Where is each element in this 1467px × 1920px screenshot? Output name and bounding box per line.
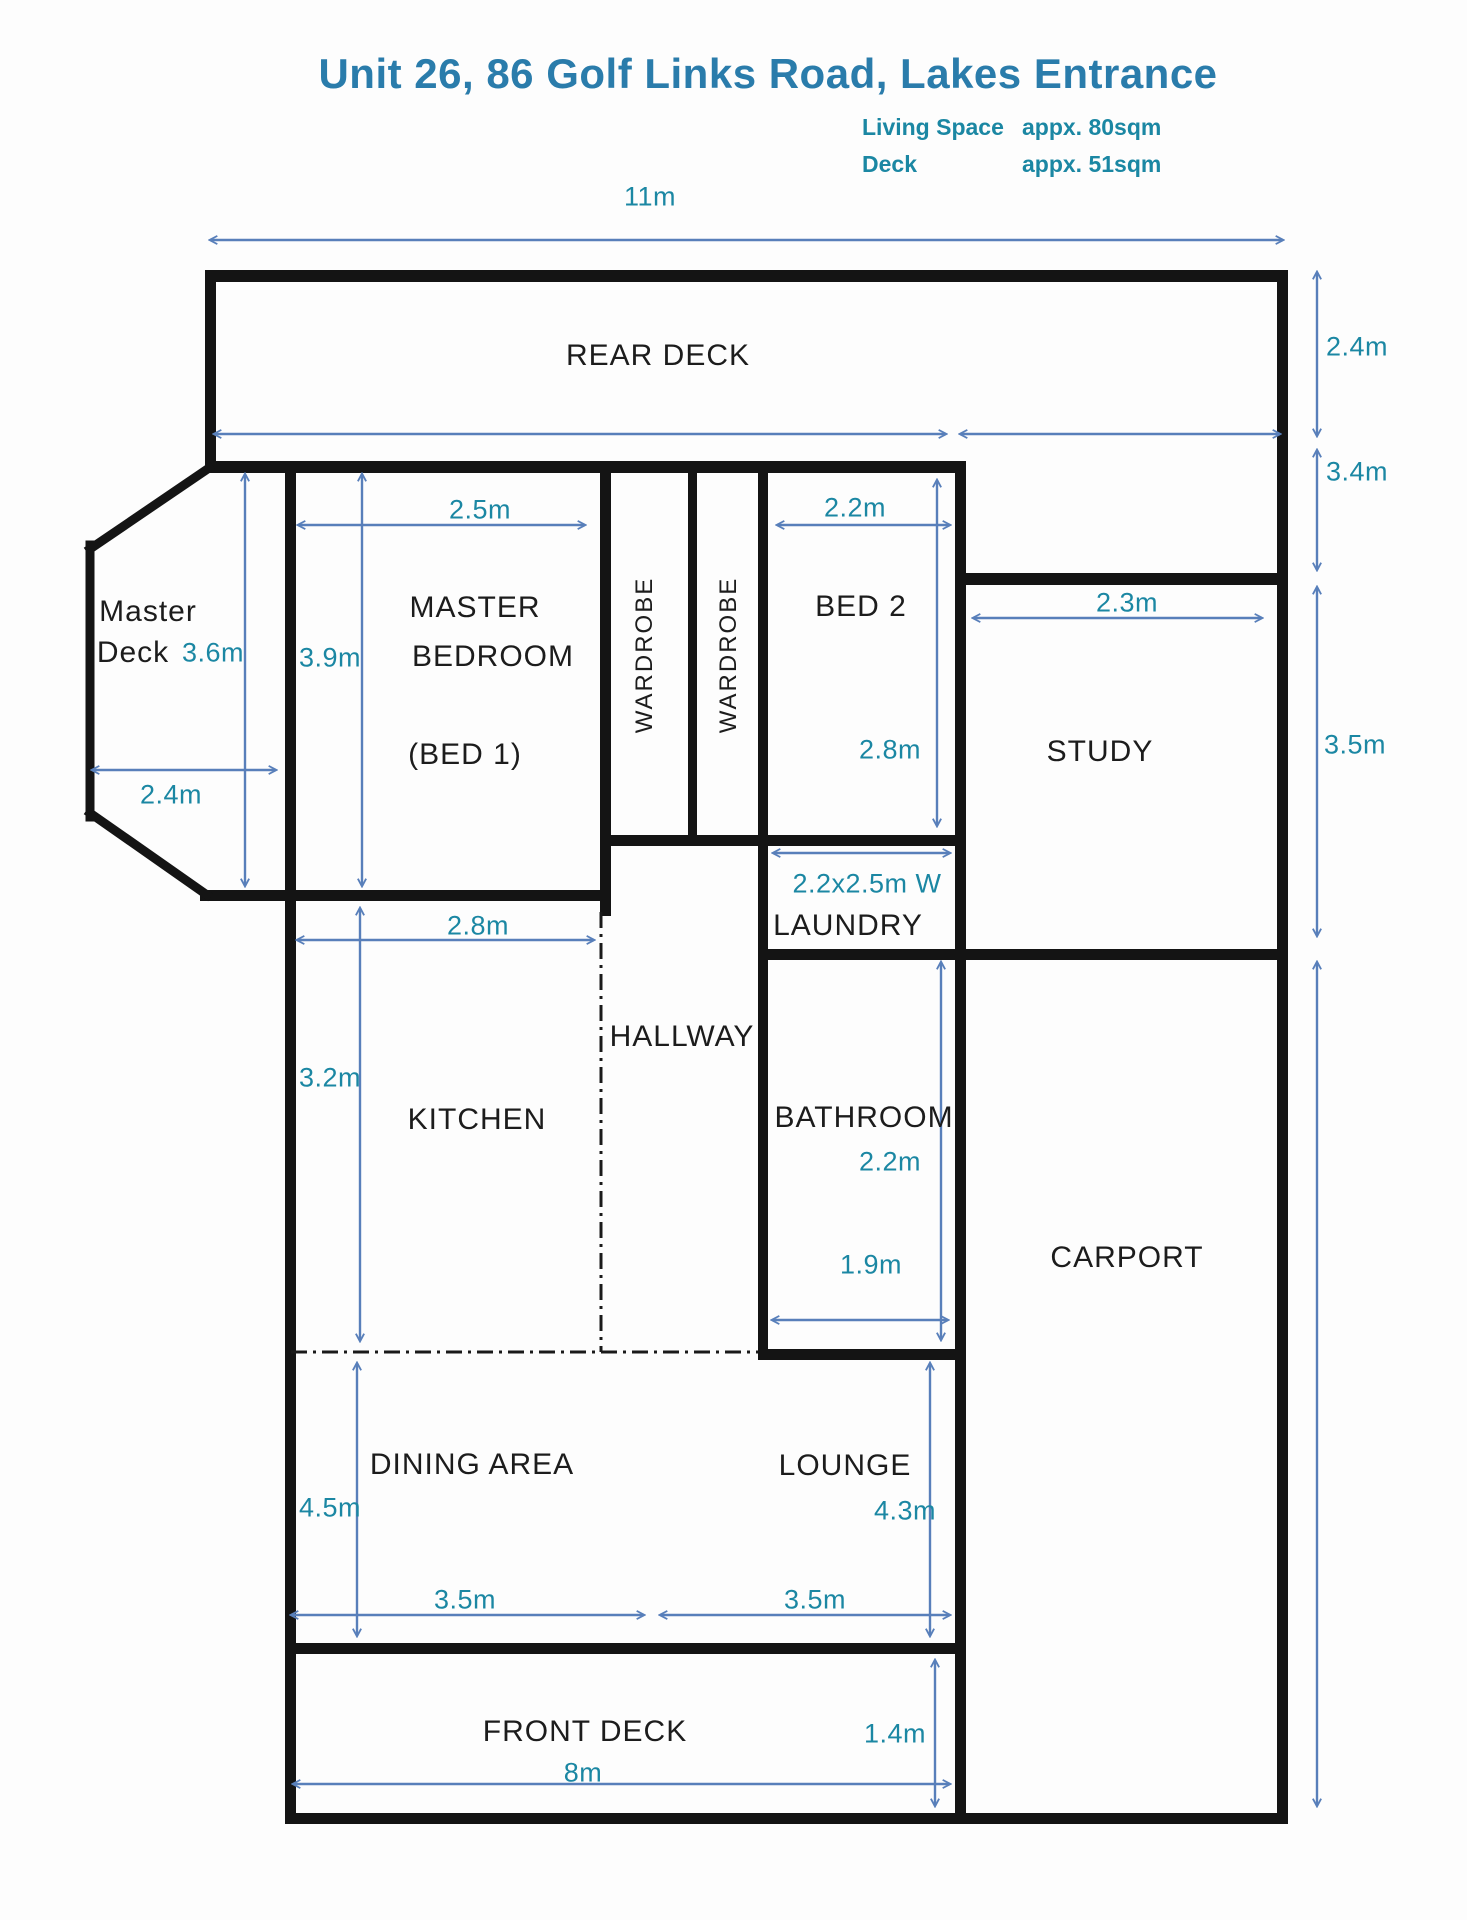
room-label-rear-deck: REAR DECK: [566, 341, 750, 371]
master-deck-outline: [90, 468, 209, 895]
dim-master-bedroom-height: 3.9m: [299, 645, 361, 672]
dim-kitchen-width: 2.8m: [447, 913, 509, 940]
dim-front-deck-depth: 1.4m: [864, 1721, 926, 1748]
dim-study-width: 2.3m: [1096, 590, 1158, 617]
dim-master-deck-height: 3.6m: [182, 640, 244, 667]
dim-dining-height: 4.5m: [299, 1495, 361, 1522]
living-space-label: Living Space: [862, 114, 1004, 141]
dim-dining-width: 3.5m: [434, 1587, 496, 1614]
room-label-kitchen: KITCHEN: [408, 1105, 547, 1135]
dim-master-deck-width: 2.4m: [140, 782, 202, 809]
dim-bed2-height: 2.8m: [859, 737, 921, 764]
dim-bed2-width: 2.2m: [824, 495, 886, 522]
room-label-study: STUDY: [1047, 737, 1154, 767]
room-label-lounge: LOUNGE: [779, 1451, 912, 1481]
deck-area-label: Deck: [862, 151, 917, 178]
dim-overall-width: 11m: [624, 184, 676, 211]
room-label-front-deck: FRONT DECK: [483, 1717, 687, 1747]
room-label-master-deck-1: Master: [99, 597, 197, 627]
page-title: Unit 26, 86 Golf Links Road, Lakes Entra…: [296, 50, 1240, 98]
room-label-bed2: BED 2: [815, 592, 907, 622]
dim-bathroom-height: 2.2m: [859, 1149, 921, 1176]
dim-bathroom-width: 1.9m: [840, 1252, 902, 1279]
room-label-master-bedroom-2: BEDROOM: [412, 642, 574, 672]
dim-lounge-width: 3.5m: [784, 1587, 846, 1614]
floorplan-page: Unit 26, 86 Golf Links Road, Lakes Entra…: [0, 0, 1467, 1920]
room-label-hallway: HALLWAY: [610, 1022, 755, 1052]
room-label-carport: CARPORT: [1050, 1243, 1203, 1273]
dim-rear-deck-depth: 2.4m: [1326, 334, 1388, 361]
dim-right-upper: 3.4m: [1326, 459, 1388, 486]
room-label-master-bedroom-3: (BED 1): [408, 740, 522, 770]
dim-kitchen-height: 3.2m: [299, 1065, 361, 1092]
dim-right-study: 3.5m: [1324, 732, 1386, 759]
room-label-wardrobe-2: WARDROBE: [717, 577, 741, 733]
dim-master-bedroom-width: 2.5m: [449, 497, 511, 524]
room-label-dining: DINING AREA: [370, 1450, 574, 1480]
dim-laundry-size: 2.2x2.5m W: [792, 871, 941, 898]
dim-front-deck-width: 8m: [564, 1760, 603, 1787]
room-label-wardrobe-1: WARDROBE: [633, 577, 657, 733]
room-label-master-bedroom-1: MASTER: [409, 593, 540, 623]
room-label-bathroom: BATHROOM: [774, 1103, 953, 1133]
room-label-master-deck-2: Deck: [97, 638, 169, 668]
living-space-value: appx. 80sqm: [1022, 114, 1161, 141]
deck-area-value: appx. 51sqm: [1022, 151, 1161, 178]
room-label-laundry: LAUNDRY: [773, 911, 923, 941]
floorplan-drawing: [0, 0, 1467, 1920]
dim-lounge-height: 4.3m: [874, 1498, 936, 1525]
